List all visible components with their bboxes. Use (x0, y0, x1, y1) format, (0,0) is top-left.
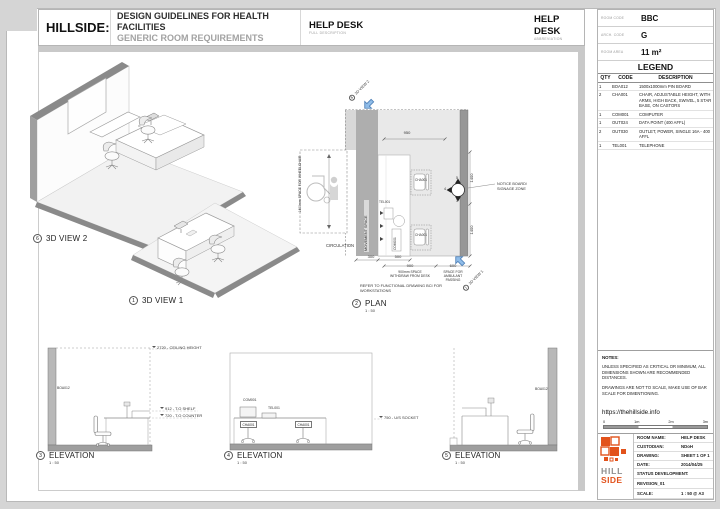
elev4-cha001-tag-2: CHA001 (295, 421, 312, 428)
room-full-description: HELP DESK FULL DESCRIPTION (301, 10, 526, 45)
bar-scale: 0 1m 2m 3m (603, 420, 708, 429)
notes-paragraph-2: DRAWINGS ARE NOT TO SCALE, MAKE USE OF B… (602, 385, 709, 397)
title-header: HILLSIDE: DESIGN GUIDELINES FOR HEALTH F… (38, 9, 585, 46)
sheet-titles: DESIGN GUIDELINES FOR HEALTH FACILITIES … (111, 10, 301, 45)
scale-tick-2m: 2m (668, 420, 673, 424)
legend-description: COMPUTER (639, 112, 712, 117)
level-marker-icon (379, 416, 383, 420)
frame-shadow-top (38, 46, 585, 52)
revision-label: REVISION_01 (634, 479, 713, 489)
notice-board-note: NOTICE BOARD/ SIGNAGE ZONE (497, 182, 539, 191)
notes-title: NOTES: (602, 355, 709, 360)
bar-scale-ticks: 0 1m 2m 3m (603, 420, 708, 424)
notes-paragraph-1: UNLESS SPECIFIED AS CRITICAL OR MINIMUM,… (602, 364, 709, 382)
legend-qty: 2 (599, 129, 612, 140)
tag-com001: COM001 (394, 228, 398, 250)
title-block-value: NDoH (681, 444, 710, 449)
view-scale-elevation-5: 1 : 50 (455, 460, 501, 465)
bar-scale-bar (603, 425, 708, 429)
elev4-cha001-tag-1: CHA001 (240, 421, 257, 428)
scale-value: 1 : 50 @ A3 (681, 491, 710, 496)
legend-qty: 1 (599, 84, 612, 89)
tag-cha001-lower: CHA001 (409, 234, 433, 238)
title-block-info: ROOM NAME: HELP DESK CUSTODIAN: NDoH DRA… (634, 434, 713, 469)
legend-row: 1 OUT024 DATA POINT (400 AFFL) (598, 119, 713, 127)
legend-row: 2 CHA001 CHAIR, ADJUSTABLE HEIGHT, WITH … (598, 91, 713, 110)
brand-logo-text: HILLSIDE: (39, 10, 111, 45)
title-block-label: DRAWING: (637, 453, 681, 458)
room-info-value: 11 m² (641, 48, 710, 57)
backdrop-corner (0, 0, 37, 31)
legend-description: CHAIR, ADJUSTABLE HEIGHT, WITH ARMS, HIG… (639, 92, 712, 108)
notes-section: NOTES: UNLESS SPECIFIED AS CRITICAL OR M… (598, 350, 713, 419)
sheet-title-sub: GENERIC ROOM REQUIREMENTS (117, 33, 300, 44)
scale-tick-3m: 3m (703, 420, 708, 424)
legend-qty: 1 (599, 120, 612, 125)
hillside-logo-icon (601, 437, 627, 461)
legend-code: OUT030 (612, 129, 639, 140)
view-name-3d-view-2: 3D VIEW 2 (46, 234, 87, 243)
room-abbreviation: HELP DESK ABBREVIATION (526, 10, 584, 45)
title-block-row: DRAWING: SHEET 1 OF 1 (634, 452, 713, 461)
elev3-counter-note: 720 - T.O COUNTER (165, 413, 202, 418)
dim-300: 300 (360, 255, 382, 260)
dim-1400-lower: 1400 (470, 218, 475, 242)
title-block-label: ROOM NAME: (637, 435, 681, 440)
title-block-value: SHEET 1 OF 1 (681, 453, 710, 458)
legend-row: 2 OUT030 OUTLET, POWER, SINGLE 16A - 400… (598, 128, 713, 142)
elevation-3-drawing (40, 342, 230, 457)
title-block: HILL SIDE ROOM NAME: HELP DESK CUSTODIAN… (598, 433, 713, 499)
scale-tick-0: 0 (603, 420, 605, 424)
view-name-plan: PLAN (365, 299, 387, 308)
legend-code: TEL001 (612, 143, 639, 148)
legend-code: COM001 (612, 112, 639, 117)
view-number-4: 4 (224, 451, 233, 460)
view-number-2: 2 (352, 299, 361, 308)
elev5-boa012-tag: BOA012 (535, 387, 548, 391)
website-link[interactable]: https://thehillside.info (602, 409, 660, 416)
legend-row: 1 TEL001 TELEPHONE (598, 142, 713, 150)
scale-row: SCALE: 1 : 50 @ A3 (634, 489, 713, 499)
legend-qty: 2 (599, 92, 612, 108)
title-block-label: CUSTODIAN: (637, 444, 681, 449)
refer-functional-note: REFER TO FUNCTIONAL DRAWING BCI FOR WORK… (360, 284, 442, 293)
elev3-boa012-tag: BOA012 (57, 386, 70, 390)
room-name-full: HELP DESK (309, 20, 526, 31)
legend-row: 1 COM001 COMPUTER (598, 111, 713, 119)
tag-tel001: TEL001 (379, 201, 390, 205)
level-marker-icon (160, 414, 164, 418)
view-direction-arrow-icon (363, 98, 375, 110)
elevation-5-drawing (446, 342, 566, 457)
legend-header-row: QTY CODE DESCRIPTION (598, 74, 713, 83)
legend-table: 1 BOA012 1500x1000mm PIN BOARD 2 CHA001 … (598, 83, 713, 150)
view-number-5: 5 (442, 451, 451, 460)
status-label: STATUS DEVELOPMENT: (634, 469, 713, 479)
drawing-sheet: { "header": { "brand": "HILLSIDE:", "tit… (0, 0, 720, 509)
sidebar-spacer (598, 150, 713, 350)
sheet-sidebar: ROOM CODE BBC ARCH. CODE G ROOM AREA 11 … (597, 9, 714, 500)
dim-500: 500 (387, 255, 409, 260)
legend-qty: 1 (599, 143, 612, 148)
dim-600: 600 (442, 264, 464, 269)
title-block-value: 2014/04/25 (681, 462, 710, 467)
dim-950: 950 (396, 131, 418, 136)
room-info-row: ROOM CODE BBC (598, 10, 713, 27)
movement-space-label: MOVEMENT SPACE (364, 200, 369, 252)
legend-row: 1 BOA012 1500x1000mm PIN BOARD (598, 83, 713, 91)
view-title-elevation-3: 3 ELEVATION 1 : 50 (36, 451, 95, 465)
view-scale-plan: 1 : 50 (365, 308, 387, 313)
withdraw-space-note: 900mm SPACE WITHDRAW FROM DESK (390, 270, 430, 278)
view-title-3d-view-2: 6 3D VIEW 2 (33, 234, 87, 243)
marker-number-5: 5 (456, 176, 458, 180)
elev3-shelf-note: 912 - T.O SHELF (165, 406, 195, 411)
view-title-3d-view-1: 1 3D VIEW 1 (129, 296, 183, 305)
room-name-full-caption: FULL DESCRIPTION (309, 31, 526, 35)
scale-label: SCALE: (637, 491, 681, 496)
marker-number-4: 4 (444, 187, 446, 191)
elev4-com001-tag: COM001 (243, 398, 257, 402)
view-title-elevation-4: 4 ELEVATION 1 : 50 (224, 451, 283, 465)
circulation-label: CIRCULATION (326, 243, 354, 248)
legend-col-qty: QTY (599, 75, 612, 81)
marker-number-3: 3 (456, 199, 458, 203)
view-name-3d-view-1: 3D VIEW 1 (142, 296, 183, 305)
legend-code: CHA001 (612, 92, 639, 108)
view-name-elevation-3: ELEVATION (49, 451, 95, 460)
level-marker-icon (152, 346, 156, 350)
legend-description: 1500x1000mm PIN BOARD (639, 84, 712, 89)
room-info-row: ROOM AREA 11 m² (598, 44, 713, 61)
room-name-abbr: HELP DESK (534, 14, 584, 37)
room-info-row: ARCH. CODE G (598, 27, 713, 44)
view-title-plan: 2 PLAN 1 : 50 (352, 299, 387, 313)
title-block-row: DATE: 2014/04/25 (634, 461, 713, 470)
room-info-label: ARCH. CODE (601, 33, 641, 37)
view-name-elevation-5: ELEVATION (455, 451, 501, 460)
legend-description: OUTLET, POWER, SINGLE 16A - 400 AFFL (639, 129, 712, 140)
legend-col-desc: DESCRIPTION (639, 75, 712, 81)
legend-code: OUT024 (612, 120, 639, 125)
wheelchair-space-note: 1400mm SPACE FOR WHEELCHAIR (298, 154, 302, 214)
view-scale-elevation-3: 1 : 50 (49, 460, 95, 465)
room-info-value: BBC (641, 14, 710, 23)
scale-tick-1m: 1m (634, 420, 639, 424)
title-block-row: CUSTODIAN: NDoH (634, 443, 713, 452)
level-marker-icon (160, 407, 164, 411)
view-scale-elevation-4: 1 : 50 (237, 460, 283, 465)
view-title-elevation-5: 5 ELEVATION 1 : 50 (442, 451, 501, 465)
elev4-socket-note: 750 - U/S SOCKET (384, 415, 418, 420)
view-number-1: 1 (129, 296, 138, 305)
legend-code: BOA012 (612, 84, 639, 89)
legend-description: TELEPHONE (639, 143, 712, 148)
elev4-tel001-tag: TEL001 (268, 406, 280, 410)
sheet-title-main: DESIGN GUIDELINES FOR HEALTH FACILITIES (117, 11, 300, 34)
hillside-logo: HILL SIDE (598, 434, 634, 499)
room-info-label: ROOM CODE (601, 16, 641, 20)
room-info-value: G (641, 31, 710, 40)
3d-view-1-drawing (130, 192, 310, 310)
legend-title: LEGEND (598, 61, 713, 74)
room-info-table: ROOM CODE BBC ARCH. CODE G ROOM AREA 11 … (598, 10, 713, 61)
legend-col-code: CODE (612, 75, 639, 81)
room-info-label: ROOM AREA (601, 50, 641, 54)
tag-cha001-upper: CHA001 (409, 179, 433, 183)
title-block-row: ROOM NAME: HELP DESK (634, 434, 713, 443)
logo-text-side: SIDE (601, 476, 631, 485)
dim-900: 900 (399, 264, 421, 269)
view-number-6: 6 (33, 234, 42, 243)
dim-1400-upper: 1400 (470, 166, 475, 190)
title-block-label: DATE: (637, 462, 681, 467)
title-block-value: HELP DESK (681, 435, 710, 440)
view-number-3: 3 (36, 451, 45, 460)
ambulant-passing-note: SPACE FOR AMBULANT PASSING (436, 270, 470, 282)
legend-qty: 1 (599, 112, 612, 117)
title-block-rows: ROOM NAME: HELP DESK CUSTODIAN: NDoH DRA… (634, 434, 713, 499)
elev3-ceiling-note: 2720 - CEILING HEIGHT (157, 345, 202, 350)
legend-description: DATA POINT (400 AFFL) (639, 120, 712, 125)
frame-shadow-right (578, 46, 585, 491)
view-name-elevation-4: ELEVATION (237, 451, 283, 460)
room-name-abbr-caption: ABBREVIATION (534, 37, 584, 41)
